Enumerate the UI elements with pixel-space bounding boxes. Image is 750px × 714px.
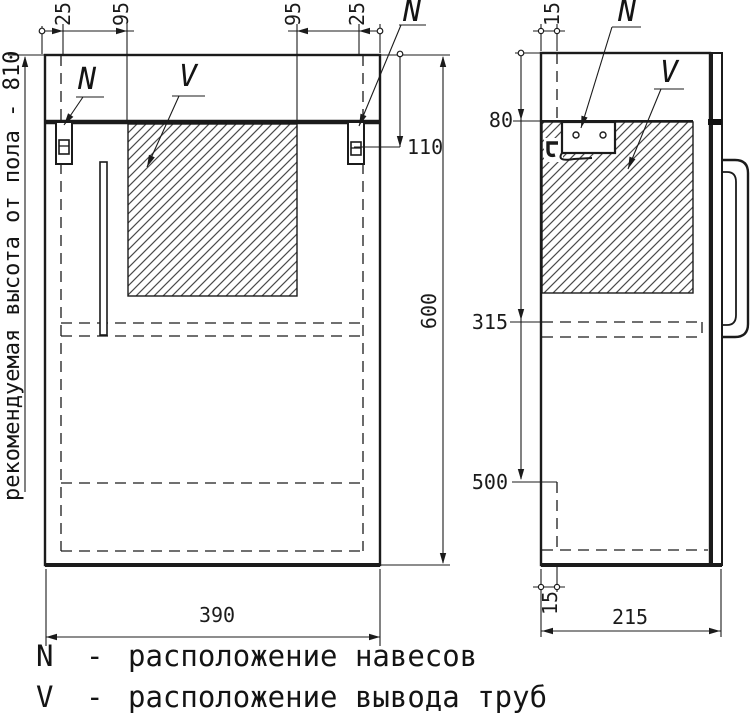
dim-label-15-top: 15: [541, 0, 563, 44]
front-hanger-left: [56, 122, 72, 164]
dim-80-315-500-lines: [518, 50, 524, 480]
side-view-linework: [510, 24, 748, 637]
legend-separator: -: [86, 681, 128, 713]
hanger-marker-front-left: N: [70, 65, 104, 95]
pipe-marker-side: V: [652, 58, 686, 88]
side-dimension-lines: [518, 28, 721, 634]
legend-description-pipes: расположение вывода труб: [128, 681, 547, 713]
side-door-handle-inner: [722, 172, 736, 325]
legend-description-hangers: расположение навесов: [128, 640, 477, 672]
dim-label-top-95-right: 95: [282, 0, 304, 44]
front-extension-lines: [8, 24, 450, 646]
side-door-outline: [712, 53, 722, 565]
front-view-linework: [8, 24, 450, 646]
legend-symbol-v: V: [36, 681, 86, 713]
dim-label-15-bottom: 15: [539, 573, 561, 633]
dim-label-390: 390: [182, 604, 252, 626]
dim-label-top-25-right: 25: [346, 0, 368, 44]
front-door-handle: [100, 162, 107, 335]
dim-label-500: 500: [448, 471, 508, 493]
dim-label-top-95-left: 95: [110, 0, 132, 44]
pipe-marker-front: V: [171, 62, 205, 92]
recommended-height-note: рекомендуемая высота от пола - 810: [0, 51, 26, 501]
front-dimension-lines: [22, 28, 446, 640]
dim-label-315: 315: [448, 311, 508, 333]
hanger-marker-side: N: [610, 0, 644, 27]
legend-row-pipes: V - расположение вывода труб: [36, 681, 547, 713]
dim-label-110: 110: [407, 136, 467, 158]
dim-label-80: 80: [453, 109, 513, 131]
installation-drawing: 25 95 95 25 110 600 390 N N V 15 80 315 …: [0, 0, 750, 714]
dim-label-top-25-left: 25: [52, 0, 74, 44]
side-door-handle-outer: [722, 160, 748, 337]
legend-row-hangers: N - расположение навесов: [36, 640, 477, 672]
side-rail-tick: [708, 119, 722, 125]
front-hanger-right: [348, 122, 364, 164]
legend-separator: -: [86, 640, 128, 672]
front-pipe-zone-hatch: [128, 124, 297, 296]
hanger-marker-front-right: N: [395, 0, 429, 27]
dim-label-600: 600: [418, 276, 440, 346]
dim-label-215: 215: [595, 606, 665, 628]
legend-symbol-n: N: [36, 640, 86, 672]
